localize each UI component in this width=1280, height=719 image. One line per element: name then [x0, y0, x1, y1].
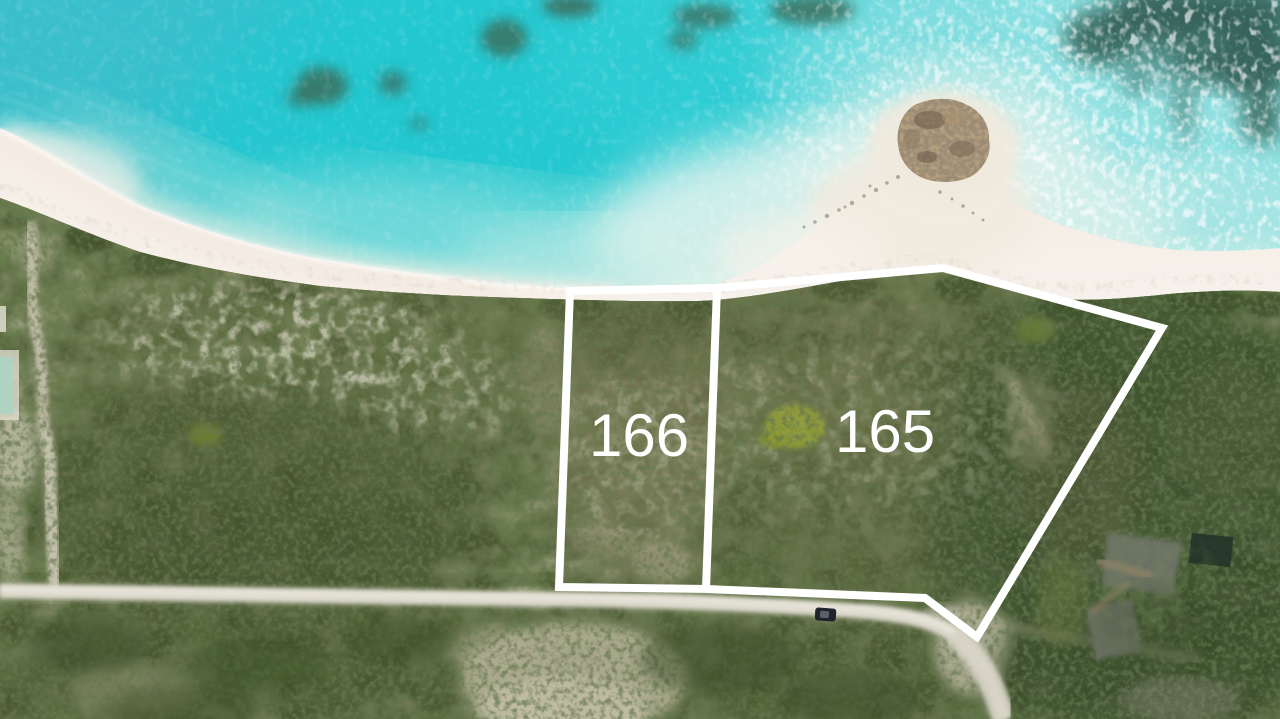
svg-text:166: 166 [589, 402, 689, 469]
svg-text:165: 165 [835, 398, 935, 465]
